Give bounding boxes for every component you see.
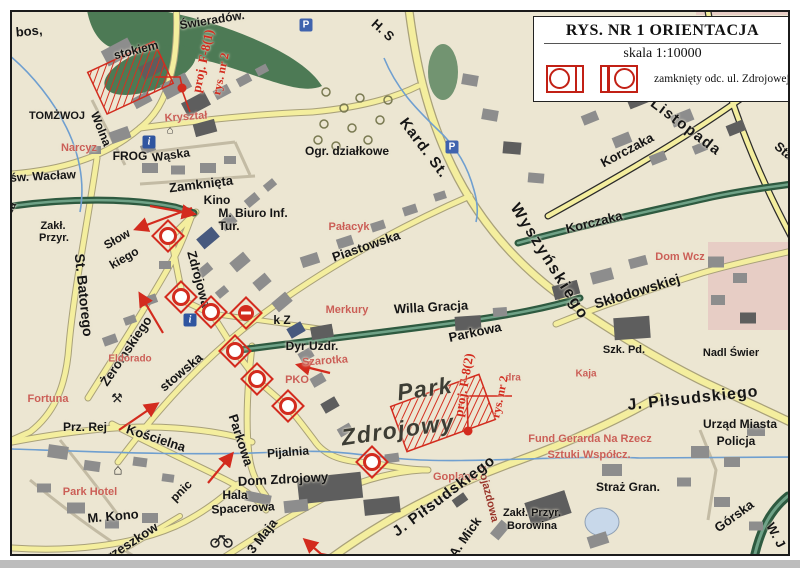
legend-box: RYS. NR 1 ORIENTACJA skala 1:10000 zamkn… <box>533 16 790 102</box>
closed-road-start-symbol <box>546 65 584 93</box>
scan-edge <box>0 560 800 568</box>
motorcycle-icon <box>211 536 232 547</box>
streams <box>10 48 790 461</box>
map-world: bos,Świeradów.stokiemTOMŻWOJWolnaKryszta… <box>10 10 790 556</box>
legend-scale: skala 1:10000 <box>534 46 790 62</box>
legend-row: zamknięty odc. ul. Zdrojowej <box>546 65 790 93</box>
legend-title: RYS. NR 1 ORIENTACJA <box>534 22 790 40</box>
legend-divider <box>544 43 781 44</box>
map-canvas: bos,Świeradów.stokiemTOMŻWOJWolnaKryszta… <box>10 10 790 556</box>
pond <box>585 508 619 536</box>
closed-road-end-symbol <box>600 65 638 93</box>
legend-closed-label: zamknięty odc. ul. Zdrojowej <box>654 73 790 85</box>
annotation-stamp-2 <box>391 374 496 451</box>
map-page: { "legend": { "title": "RYS. NR 1 ORIENT… <box>0 0 800 568</box>
